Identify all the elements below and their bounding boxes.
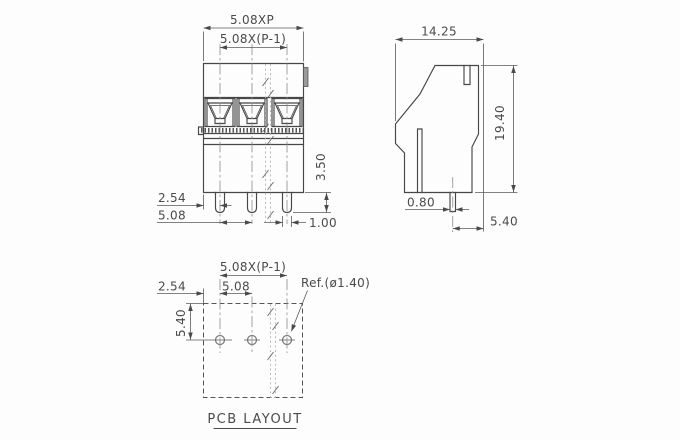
dim-pcb-pitch: 5.08	[222, 280, 250, 294]
dim-front-edge-offset: 2.54	[158, 191, 186, 205]
side-view-body	[396, 66, 479, 212]
dim-side-depth: 14.25	[421, 25, 457, 39]
technical-drawing-canvas: 5.08XP 5.08X(P-1) 2.54 5.08 1.00 3.50 14…	[0, 0, 680, 440]
dim-front-pin-length: 3.50	[314, 153, 328, 181]
front-view-pins	[216, 193, 292, 213]
pcb-layout-view: 5.08X(P-1) 2.54 5.08 5.40 Ref.(ø1.40) PC…	[157, 260, 370, 429]
terminal-block-drawing: 5.08XP 5.08X(P-1) 2.54 5.08 1.00 3.50 14…	[0, 0, 680, 440]
side-view-top-slot	[464, 66, 470, 85]
pcb-layout-caption: PCB LAYOUT	[207, 412, 302, 427]
dim-side-pin-to-edge: 5.40	[490, 215, 518, 229]
front-view-side-tab	[304, 68, 309, 87]
dim-side-pin-thickness: 0.80	[407, 196, 435, 210]
dim-pcb-row-offset: 5.40	[174, 309, 188, 337]
pcb-dimensions: 5.08X(P-1) 2.54 5.08 5.40 Ref.(ø1.40)	[157, 260, 370, 340]
front-view-wire-funnels	[205, 99, 302, 127]
side-view-dimensions: 14.25 19.40 0.80 5.40	[396, 25, 518, 232]
pcb-outline-dashed	[204, 304, 303, 398]
pcb-break-lines	[268, 304, 279, 399]
side-view-screw-slot	[418, 129, 423, 193]
dim-front-pin-width: 1.00	[309, 216, 337, 230]
front-view: 5.08XP 5.08X(P-1) 2.54 5.08 1.00 3.50	[157, 13, 337, 230]
dim-pcb-span: 5.08X(P-1)	[220, 260, 286, 274]
dim-front-span: 5.08X(P-1)	[220, 32, 286, 46]
pcb-hole-reference-label: Ref.(ø1.40)	[301, 276, 370, 290]
front-view-break-lines	[263, 64, 274, 222]
side-view: 14.25 19.40 0.80 5.40	[396, 25, 518, 233]
dim-front-pitch: 5.08	[158, 209, 186, 223]
dim-front-total-pitch: 5.08XP	[230, 13, 274, 27]
dim-side-height: 19.40	[493, 105, 507, 141]
pcb-caption: PCB LAYOUT	[207, 412, 302, 429]
dim-pcb-edge-offset: 2.54	[158, 280, 186, 294]
